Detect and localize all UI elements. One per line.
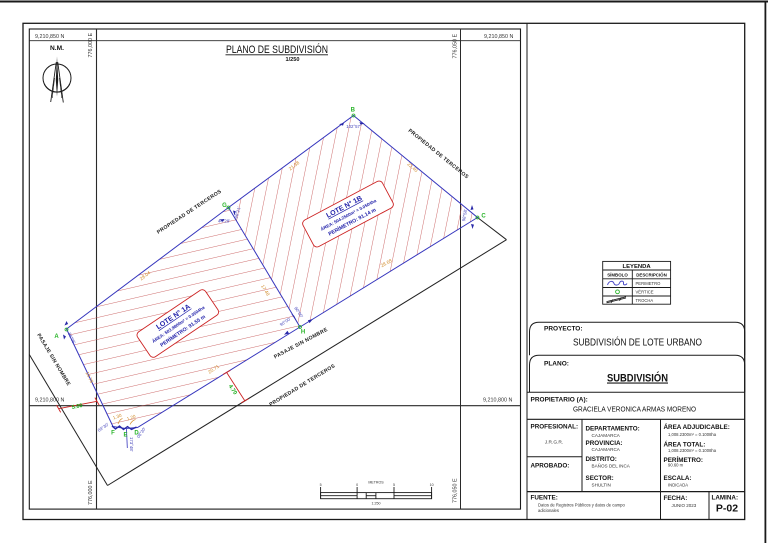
svg-text:1,008.2300m² = 0.1008ha: 1,008.2300m² = 0.1008ha	[668, 448, 717, 453]
svg-text:INDICADA: INDICADA	[668, 483, 688, 488]
svg-text:P-02: P-02	[716, 503, 738, 515]
svg-text:FECHA:: FECHA:	[664, 495, 688, 502]
svg-text:776,000 E: 776,000 E	[88, 33, 94, 58]
svg-text:PROVINCIA:: PROVINCIA:	[586, 440, 623, 447]
svg-text:BAÑOS DEL INCA: BAÑOS DEL INCA	[592, 462, 631, 468]
svg-text:SUBDIVISIÓN DE LOTE URBANO: SUBDIVISIÓN DE LOTE URBANO	[573, 336, 702, 349]
svg-text:JUNIO 2023: JUNIO 2023	[672, 503, 697, 508]
svg-text:9,210,850 N: 9,210,850 N	[484, 34, 513, 40]
svg-text:LAMINA:: LAMINA:	[712, 495, 739, 502]
svg-text:FUENTE:: FUENTE:	[531, 495, 558, 502]
svg-text:TROCHA: TROCHA	[636, 298, 654, 303]
svg-text:PROYECTO:: PROYECTO:	[544, 326, 583, 333]
svg-text:METROS: METROS	[368, 481, 384, 485]
svg-text:ÁREA ADJUDICABLE:: ÁREA ADJUDICABLE:	[664, 422, 730, 431]
svg-text:776,050 E: 776,050 E	[453, 478, 459, 503]
svg-text:PLANO:: PLANO:	[544, 361, 569, 368]
svg-text:PERIMETRO: PERIMETRO	[636, 281, 662, 286]
svg-text:GRACIELA VERONICA ARMAS MORENO: GRACIELA VERONICA ARMAS MORENO	[573, 405, 696, 414]
svg-text:0: 0	[356, 483, 358, 487]
svg-text:B: B	[351, 108, 356, 114]
svg-text:A: A	[54, 334, 59, 340]
svg-text:C: C	[481, 214, 486, 220]
svg-text:1,008.2300m² = 0.1008ha: 1,008.2300m² = 0.1008ha	[668, 432, 717, 437]
svg-text:H: H	[301, 330, 305, 336]
svg-text:PASAJE SIN NOMBRE: PASAJE SIN NOMBRE	[35, 333, 71, 388]
svg-text:F: F	[111, 431, 115, 437]
svg-text:VÉRTICE: VÉRTICE	[636, 290, 654, 295]
svg-text:09°30': 09°30'	[97, 422, 110, 433]
svg-text:APROBADO:: APROBADO:	[531, 463, 570, 470]
svg-text:1:250: 1:250	[372, 502, 381, 506]
svg-text:776,050 E: 776,050 E	[453, 34, 459, 59]
svg-text:102°57': 102°57'	[346, 124, 361, 129]
svg-text:adicionales: adicionales	[538, 508, 559, 513]
svg-text:776,000 E: 776,000 E	[88, 480, 94, 505]
svg-text:ÁREA TOTAL:: ÁREA TOTAL:	[664, 439, 706, 448]
svg-text:SHULTIN: SHULTIN	[592, 483, 611, 488]
svg-text:DESCRIPCIÓN: DESCRIPCIÓN	[636, 273, 667, 278]
svg-text:PROPIETARIO (A):: PROPIETARIO (A):	[531, 397, 588, 404]
svg-text:5: 5	[320, 483, 322, 487]
svg-text:90.60 m: 90.60 m	[668, 462, 684, 467]
svg-text:CAJAMARCA: CAJAMARCA	[592, 433, 621, 438]
svg-text:PLANO DE SUBDIVISIÓN: PLANO DE SUBDIVISIÓN	[226, 43, 328, 56]
svg-text:CAJAMARCA: CAJAMARCA	[592, 447, 621, 452]
svg-text:PROPIEDAD DE TERCEROS: PROPIEDAD DE TERCEROS	[268, 363, 336, 408]
svg-text:E: E	[123, 433, 127, 439]
svg-text:J.R.G.R.: J.R.G.R.	[545, 440, 563, 446]
svg-text:5.00: 5.00	[71, 403, 83, 411]
svg-text:9,210,800 N: 9,210,800 N	[35, 398, 64, 404]
svg-text:Datos de Registros Públicos y: Datos de Registros Públicos y datos de c…	[538, 503, 625, 508]
svg-text:1/250: 1/250	[286, 57, 300, 63]
svg-text:LEYENDA: LEYENDA	[623, 264, 652, 270]
svg-text:9,210,800 N: 9,210,800 N	[483, 398, 512, 404]
svg-text:N.M.: N.M.	[50, 45, 64, 52]
svg-text:PROFESIONAL:: PROFESIONAL:	[531, 424, 579, 431]
svg-text:SÍMBOLO: SÍMBOLO	[607, 273, 628, 278]
svg-text:173°48': 173°48'	[129, 437, 134, 452]
svg-text:D: D	[134, 431, 139, 437]
svg-text:DEPARTAMENTO:: DEPARTAMENTO:	[586, 426, 640, 433]
svg-text:5: 5	[393, 483, 395, 487]
svg-text:SECTOR:: SECTOR:	[586, 475, 614, 482]
svg-text:4.70: 4.70	[227, 384, 238, 396]
svg-text:10: 10	[430, 483, 434, 487]
svg-text:G: G	[222, 203, 227, 209]
svg-text:DISTRITO:: DISTRITO:	[586, 456, 617, 463]
svg-text:9,210,850 N: 9,210,850 N	[35, 34, 64, 40]
svg-text:SUBDIVISIÓN: SUBDIVISIÓN	[607, 372, 668, 385]
svg-text:ESCALA:: ESCALA:	[664, 475, 692, 482]
